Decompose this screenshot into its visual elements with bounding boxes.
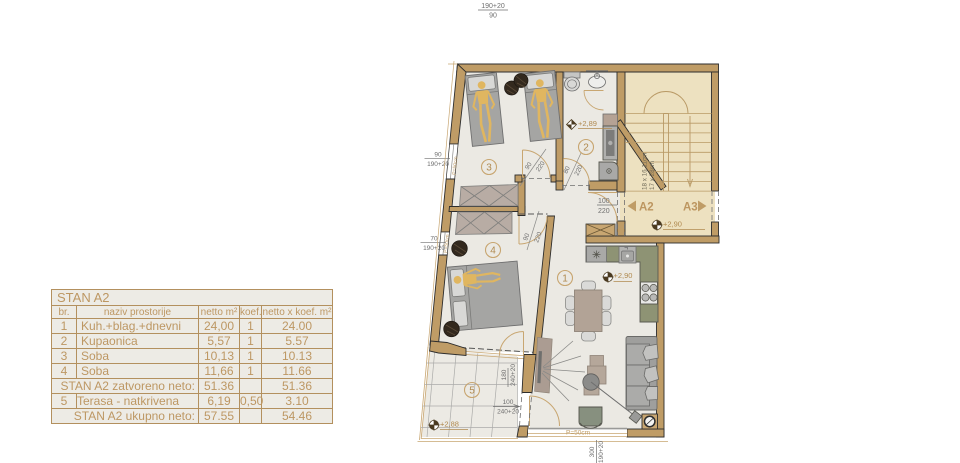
svg-text:3: 3 <box>486 163 492 174</box>
svg-text:5: 5 <box>469 386 475 397</box>
svg-text:90: 90 <box>489 13 497 20</box>
svg-text:70: 70 <box>430 236 438 243</box>
svg-text:1: 1 <box>562 274 568 285</box>
svg-text:A2: A2 <box>639 202 654 214</box>
svg-text:100: 100 <box>598 198 610 205</box>
svg-text:220: 220 <box>598 208 610 215</box>
svg-text:100: 100 <box>503 399 514 406</box>
svg-text:+2,88: +2,88 <box>440 420 459 429</box>
svg-text:180: 180 <box>501 369 508 380</box>
svg-text:240+20: 240+20 <box>510 364 517 386</box>
svg-text:2: 2 <box>583 143 589 154</box>
svg-text:17 x 28cm: 17 x 28cm <box>649 161 656 190</box>
svg-text:18 x 16,11cm: 18 x 16,11cm <box>642 153 649 190</box>
svg-text:+2,90: +2,90 <box>614 271 633 280</box>
svg-text:190+20: 190+20 <box>423 245 445 252</box>
svg-text:190+20: 190+20 <box>598 441 605 463</box>
svg-text:A3: A3 <box>683 202 698 214</box>
svg-text:P=50cm: P=50cm <box>566 430 590 437</box>
svg-text:190+20: 190+20 <box>427 161 449 168</box>
svg-text:190+20: 190+20 <box>481 3 505 10</box>
svg-text:+2,90: +2,90 <box>663 220 682 229</box>
svg-text:300: 300 <box>589 446 596 457</box>
svg-text:240+20: 240+20 <box>497 409 519 416</box>
svg-text:+2,89: +2,89 <box>578 119 597 128</box>
svg-text:90: 90 <box>434 152 442 159</box>
svg-text:4: 4 <box>490 246 496 257</box>
